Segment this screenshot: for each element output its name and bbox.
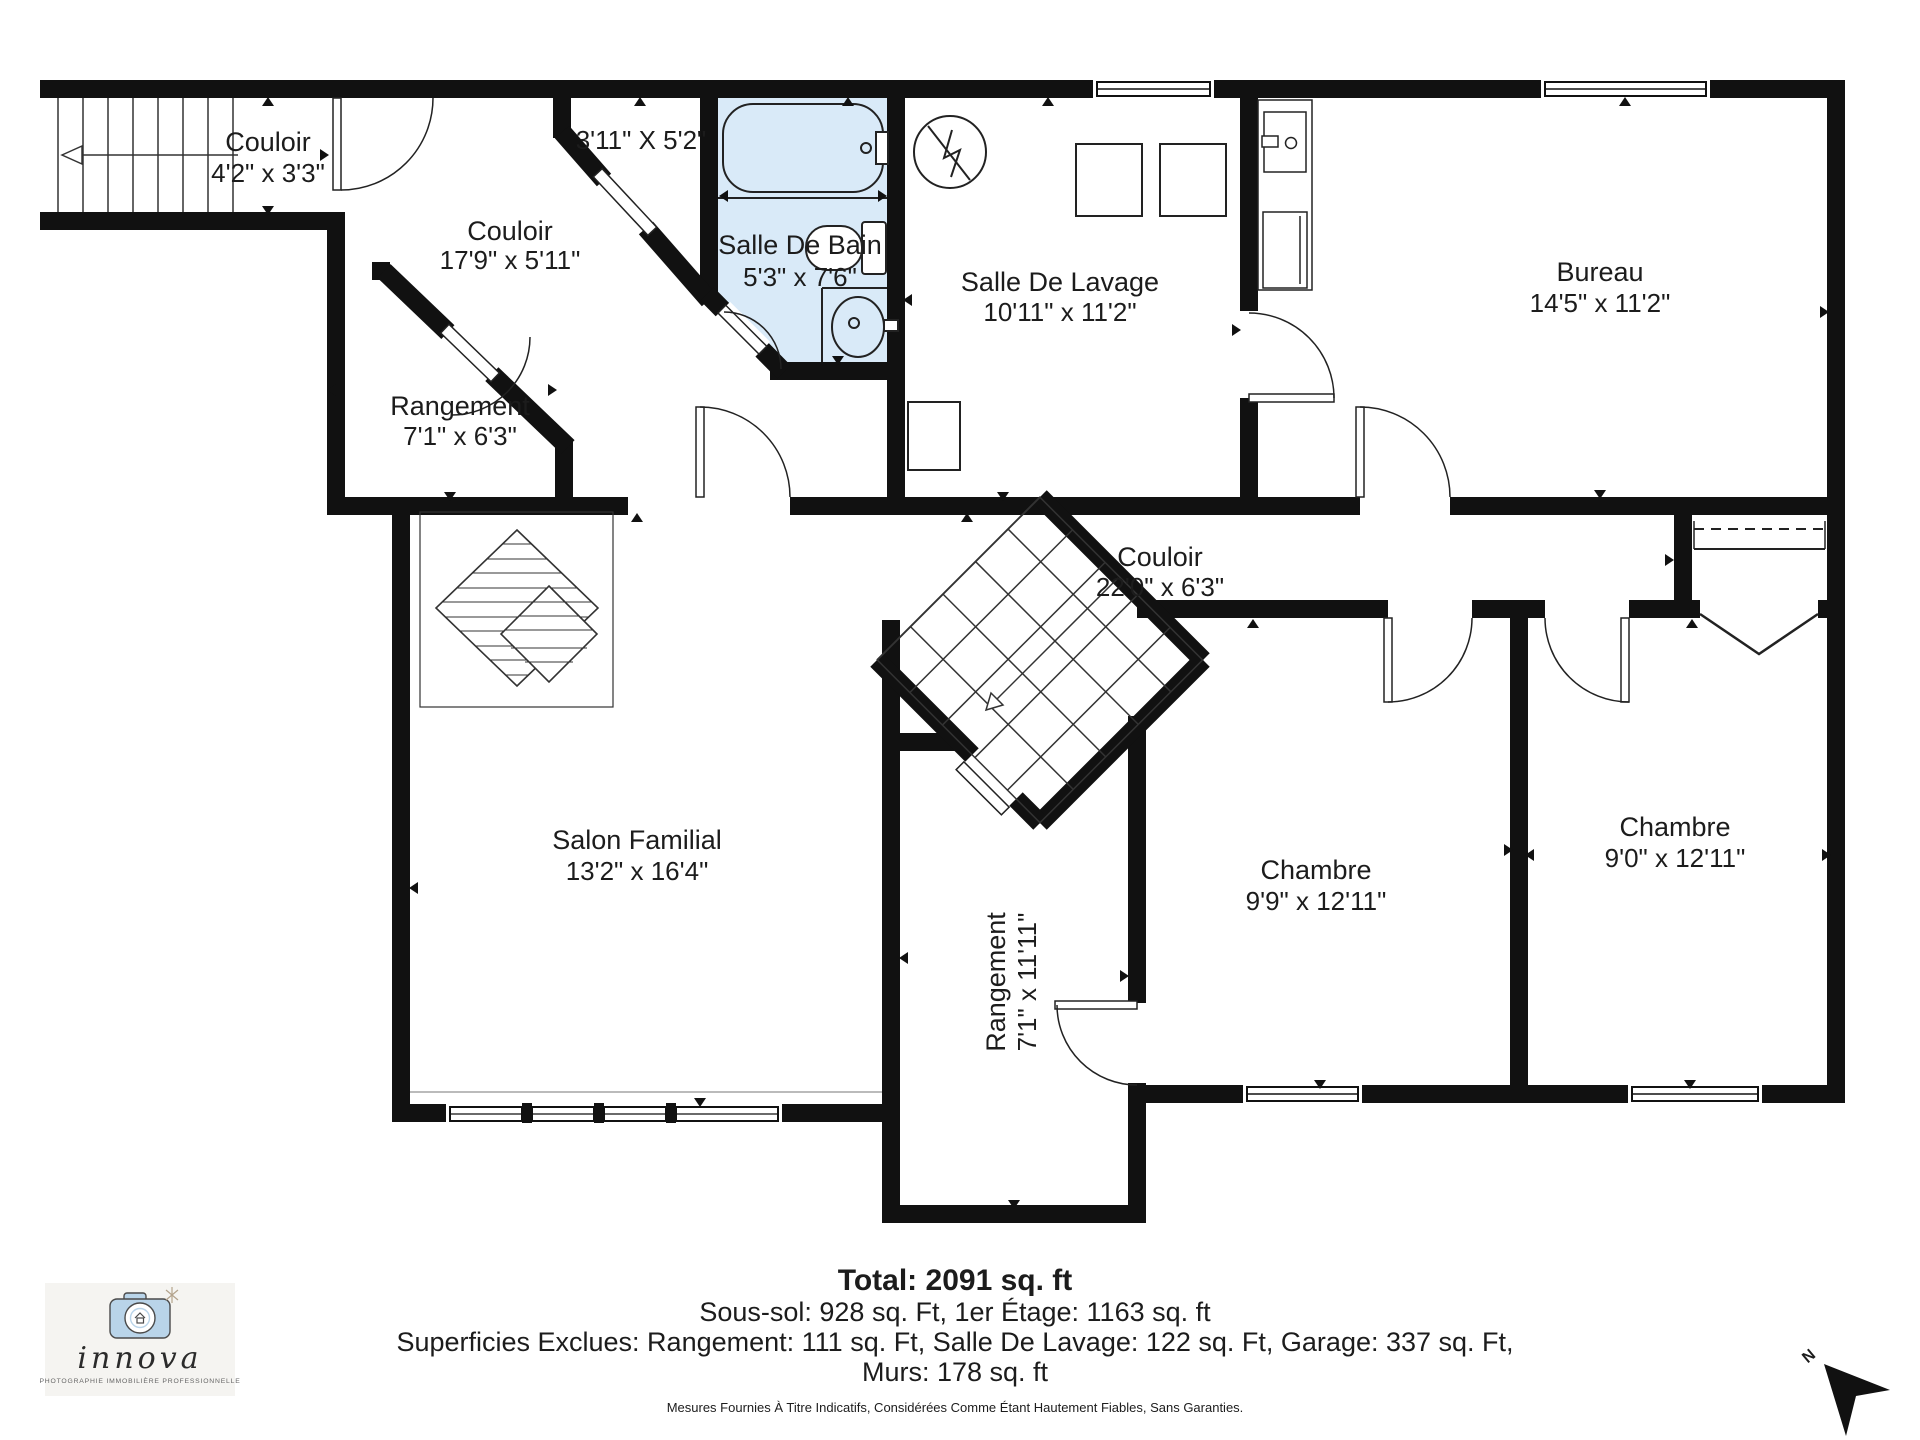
logo-tagline: PHOTOGRAPHIE IMMOBILIÈRE PROFESSIONNELLE (39, 1376, 240, 1385)
room-dims-chambre-1: 9'9" x 12'11" (1246, 886, 1387, 916)
washer-icon (1076, 144, 1142, 216)
floor-plan-page: Couloir 4'2" x 3'3" 3'11" X 5'2" Couloir… (0, 0, 1920, 1440)
room-label-couloir-diag: Couloir (467, 216, 553, 246)
bifold-door-icon (1700, 614, 1818, 654)
utility-box (908, 402, 960, 470)
room-label-salon: Salon Familial (552, 825, 722, 855)
window-laundry (1093, 79, 1214, 99)
water-heater-icon (914, 116, 986, 188)
window-chambre-2 (1628, 1084, 1762, 1104)
compass: N (1799, 1346, 1890, 1436)
room-dims-bureau: 14'5" x 11'2" (1530, 288, 1671, 318)
room-dims-rangement-bas: 7'1" x 11'11" (1012, 913, 1042, 1052)
room-dims-salle-de-bain: 5'3" x 7'6" (743, 262, 857, 292)
room-label-chambre-2: Chambre (1619, 812, 1730, 842)
room-label-couloir-stairs: Couloir (225, 127, 311, 157)
room-label-rangement-bas: Rangement (981, 912, 1011, 1052)
room-dims-couloir-stairs: 4'2" x 3'3" (211, 158, 325, 188)
dryer-icon (1160, 144, 1226, 216)
logo-brand: innova (77, 1341, 202, 1376)
room-dims-couloir-diag: 17'9" x 5'11" (440, 245, 581, 275)
entry-closet (1694, 521, 1825, 654)
room-label-bureau: Bureau (1556, 257, 1643, 287)
room-dims-couloir-principal: 22'0" x 6'3" (1096, 572, 1224, 602)
bureau-fixtures (1258, 100, 1312, 290)
room-label-chambre-1: Chambre (1260, 855, 1371, 885)
salon-decor (410, 512, 882, 1092)
summary-line-3: Superficies Exclues: Rangement: 111 sq. … (396, 1327, 1513, 1357)
logo: innova PHOTOGRAPHIE IMMOBILIÈRE PROFESSI… (39, 1283, 240, 1396)
room-dims-closet: 3'11" X 5'2" (576, 125, 707, 155)
room-dims-chambre-2: 9'0" x 12'11" (1605, 843, 1746, 873)
room-label-rangement-haut: Rangement (390, 391, 530, 421)
room-label-couloir-principal: Couloir (1117, 542, 1203, 572)
room-label-salle-de-lavage: Salle De Lavage (961, 267, 1159, 297)
room-label-salle-de-bain: Salle De Bain (718, 230, 882, 260)
staircase-entry (58, 98, 238, 212)
floor-plan-svg: Couloir 4'2" x 3'3" 3'11" X 5'2" Couloir… (0, 0, 1920, 1440)
door-gap (1126, 1003, 1148, 1083)
summary-total: Total: 2091 sq. ft (838, 1264, 1073, 1297)
north-arrow-icon (1824, 1364, 1890, 1436)
summary-disclaimer: Mesures Fournies À Titre Indicatifs, Con… (667, 1400, 1244, 1415)
walls (40, 80, 1845, 1223)
room-dims-salle-de-lavage: 10'11" x 11'2" (983, 297, 1136, 327)
room-dims-salon: 13'2" x 16'4" (566, 856, 709, 886)
room-dims-rangement-haut: 7'1" x 6'3" (403, 421, 517, 451)
window-salon (446, 1103, 782, 1123)
stair-direction-arrow (62, 146, 82, 164)
summary-block: Total: 2091 sq. ft Sous-sol: 928 sq. Ft,… (396, 1264, 1513, 1415)
north-label: N (1799, 1346, 1819, 1366)
window-chambre-1 (1243, 1084, 1362, 1104)
summary-line-2: Sous-sol: 928 sq. Ft, 1er Étage: 1163 sq… (699, 1297, 1211, 1327)
summary-line-4: Murs: 178 sq. ft (862, 1357, 1049, 1387)
window-bureau (1541, 79, 1710, 99)
